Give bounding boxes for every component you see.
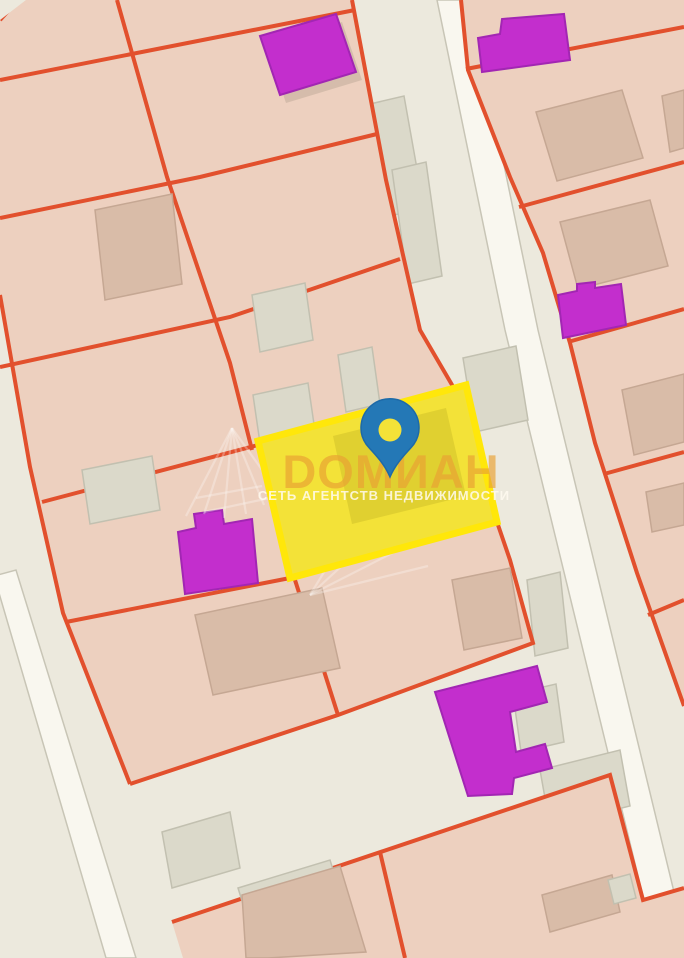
building [452, 568, 522, 650]
watermark-subtitle: СЕТЬ АГЕНТСТВ НЕДВИЖИМОСТИ [258, 488, 510, 503]
building [608, 874, 636, 904]
building [646, 483, 684, 532]
building [252, 283, 313, 352]
map-viewport[interactable]: DОМИАН СЕТЬ АГЕНТСТВ НЕДВИЖИМОСТИ [0, 0, 684, 958]
building [95, 194, 182, 300]
building [338, 347, 380, 412]
pin-hole [379, 419, 402, 442]
parcel-map[interactable]: DОМИАН СЕТЬ АГЕНТСТВ НЕДВИЖИМОСТИ [0, 0, 684, 958]
